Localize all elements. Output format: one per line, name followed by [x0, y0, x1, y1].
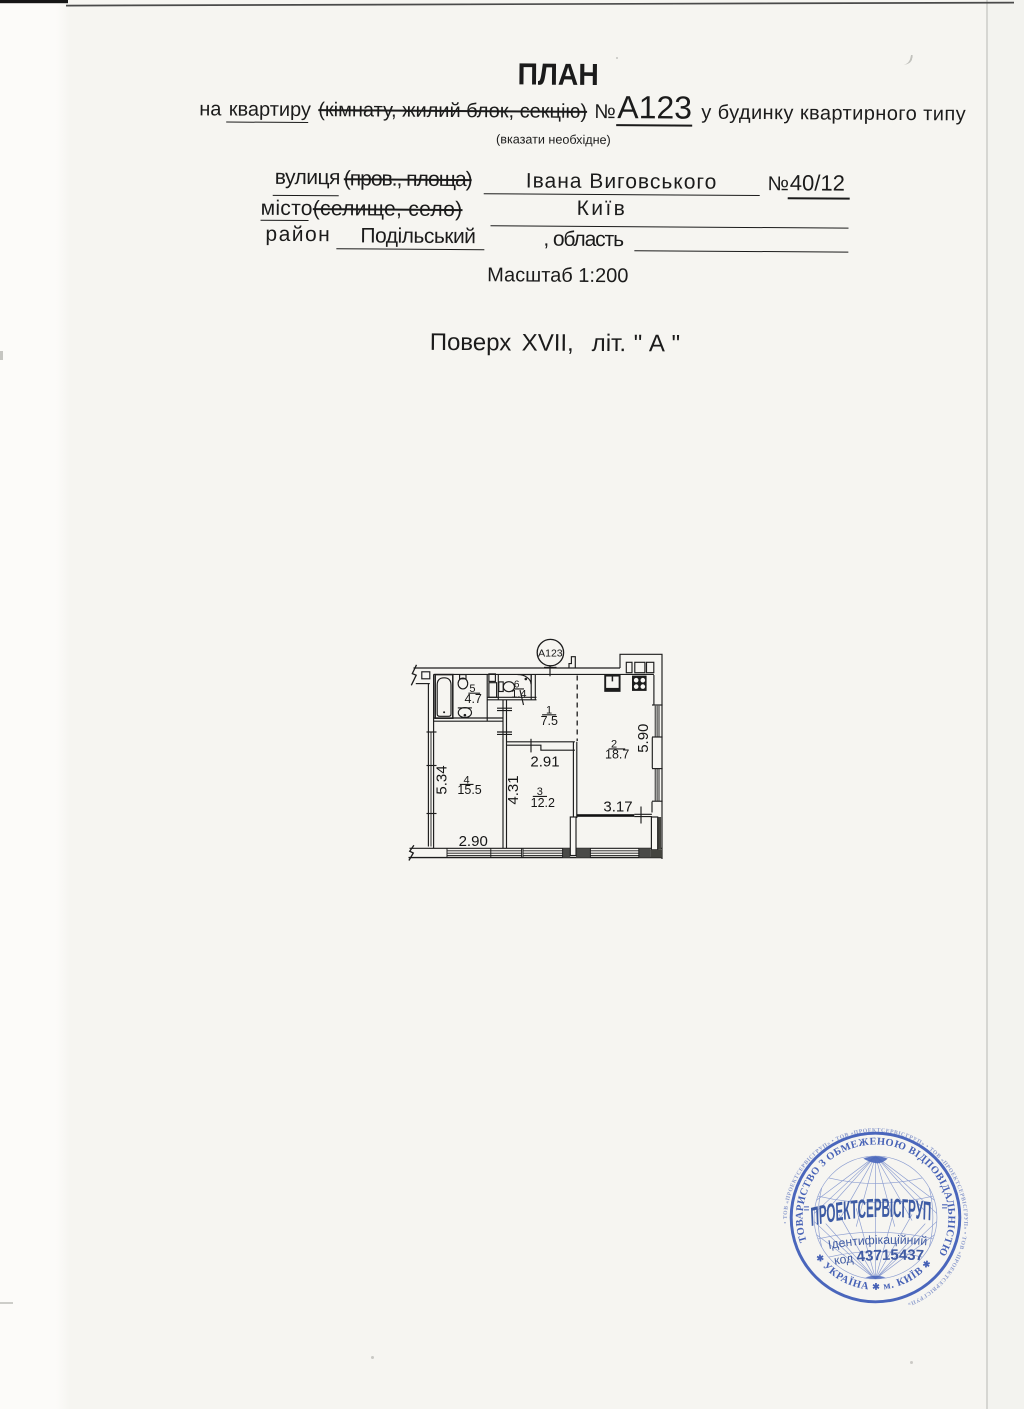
- svg-text:ПРОЕКТСЕРВIСГРУП: ПРОЕКТСЕРВIСГРУП: [810, 1195, 931, 1233]
- svg-text:7.5: 7.5: [541, 714, 558, 728]
- svg-text:4.31: 4.31: [505, 775, 522, 804]
- svg-text:код 43715437: код 43715437: [833, 1247, 924, 1268]
- svg-text:А123: А123: [538, 648, 563, 660]
- svg-text:2.90: 2.90: [459, 833, 488, 850]
- svg-text:2.91: 2.91: [530, 753, 559, 770]
- svg-text:4.7: 4.7: [465, 692, 482, 706]
- svg-text:5.90: 5.90: [635, 724, 652, 753]
- svg-text:3.17: 3.17: [603, 799, 632, 816]
- svg-text:12.2: 12.2: [531, 796, 555, 810]
- svg-text:5.34: 5.34: [433, 765, 450, 794]
- svg-text:1.4: 1.4: [511, 689, 526, 701]
